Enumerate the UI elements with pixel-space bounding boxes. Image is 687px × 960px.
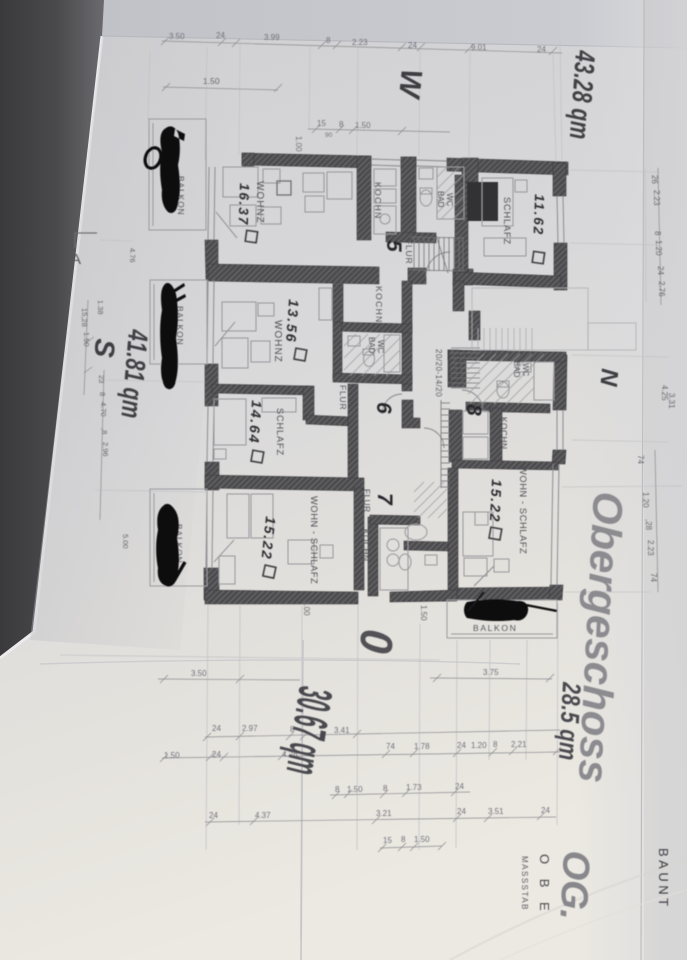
- svg-text:WOHNZ: WOHNZ: [272, 320, 283, 363]
- svg-text:KOCHN: KOCHN: [499, 417, 509, 449]
- svg-text:15.22: 15.22: [487, 479, 505, 524]
- svg-text:74: 74: [636, 455, 645, 464]
- svg-text:SCHLAFZ: SCHLAFZ: [275, 408, 285, 456]
- svg-text:8: 8: [462, 404, 485, 416]
- svg-text:WC: WC: [445, 193, 454, 207]
- svg-text:WC: WC: [376, 340, 385, 354]
- svg-text:3.75: 3.75: [483, 668, 499, 677]
- svg-text:20/20-14/20: 20/20-14/20: [434, 349, 443, 397]
- svg-text:23: 23: [97, 375, 106, 383]
- svg-text:WOHN - SCHLAFZ: WOHN - SCHLAFZ: [518, 466, 528, 554]
- svg-text:A: A: [71, 251, 81, 268]
- svg-text:BAD: BAD: [512, 361, 521, 378]
- svg-text:24: 24: [457, 807, 466, 816]
- svg-text:8: 8: [339, 120, 344, 129]
- svg-text:74: 74: [649, 573, 658, 582]
- svg-text:3.51: 3.51: [488, 807, 504, 816]
- svg-text:O B E: O B E: [537, 854, 552, 916]
- svg-text:43.28 qm: 43.28 qm: [563, 49, 600, 141]
- svg-text:24: 24: [656, 266, 665, 275]
- svg-text:14.64: 14.64: [246, 400, 265, 445]
- svg-text:MASSSTAB: MASSSTAB: [520, 856, 529, 911]
- svg-text:2.21: 2.21: [511, 740, 527, 749]
- svg-text:4.76: 4.76: [128, 248, 137, 263]
- svg-text:2.97: 2.97: [242, 724, 258, 733]
- svg-text:3.50: 3.50: [169, 32, 185, 41]
- svg-text:2.76: 2.76: [657, 281, 666, 297]
- svg-text:5: 5: [382, 240, 405, 252]
- svg-text:BAD: BAD: [436, 191, 445, 208]
- svg-text:WOHNZ: WOHNZ: [254, 181, 265, 224]
- svg-text:BALKON: BALKON: [473, 623, 517, 633]
- svg-text:OG.: OG.: [551, 850, 597, 922]
- svg-text:S: S: [88, 337, 121, 359]
- svg-text:13.56: 13.56: [283, 299, 302, 344]
- svg-text:24: 24: [541, 806, 550, 815]
- svg-text:1.38: 1.38: [96, 300, 105, 315]
- svg-text:1.50: 1.50: [203, 76, 220, 86]
- svg-text:1.50: 1.50: [414, 835, 430, 844]
- svg-text:8: 8: [493, 740, 498, 749]
- svg-text:1.00: 1.00: [294, 136, 303, 152]
- svg-text:15: 15: [383, 836, 392, 845]
- svg-text:3.21: 3.21: [376, 809, 392, 818]
- svg-text:8: 8: [98, 392, 107, 396]
- svg-text:1.50: 1.50: [419, 605, 428, 621]
- svg-text:15: 15: [317, 119, 326, 128]
- svg-text:24: 24: [216, 31, 225, 40]
- svg-text:3.99: 3.99: [264, 33, 280, 42]
- svg-text:1.50: 1.50: [355, 121, 371, 130]
- svg-text:74: 74: [386, 742, 395, 751]
- svg-text:24: 24: [408, 41, 417, 50]
- svg-text:5.00: 5.00: [121, 534, 130, 549]
- svg-text:8: 8: [326, 36, 331, 45]
- svg-text:1.00: 1.00: [302, 600, 311, 616]
- svg-text:24: 24: [455, 782, 464, 791]
- svg-text:6: 6: [372, 402, 395, 414]
- svg-text:24: 24: [212, 750, 221, 759]
- svg-text:3.50: 3.50: [191, 669, 207, 678]
- svg-text:8: 8: [653, 231, 662, 236]
- svg-text:KOCHN: KOCHN: [374, 286, 384, 324]
- svg-text:16.37: 16.37: [236, 183, 252, 226]
- svg-text:8: 8: [383, 784, 388, 793]
- svg-text:2.96: 2.96: [101, 442, 110, 457]
- svg-text:1.78: 1.78: [414, 742, 430, 751]
- svg-text:BAD: BAD: [367, 337, 376, 354]
- svg-text:2.23: 2.23: [646, 540, 655, 556]
- svg-text:BAUNT: BAUNT: [656, 848, 671, 910]
- svg-text:2.23: 2.23: [652, 190, 661, 206]
- svg-text:90: 90: [325, 132, 333, 139]
- svg-text:26: 26: [650, 175, 659, 184]
- svg-text:24: 24: [537, 45, 546, 54]
- svg-text:24: 24: [212, 724, 221, 733]
- svg-text:KOCHN: KOCHN: [373, 182, 383, 220]
- svg-text:SCHLAFZ: SCHLAFZ: [502, 197, 512, 245]
- svg-text:1.20: 1.20: [654, 240, 663, 256]
- svg-text:2.23: 2.23: [352, 38, 368, 47]
- svg-text:8: 8: [401, 835, 406, 844]
- svg-text:WC: WC: [521, 363, 530, 377]
- svg-text:WOHN - SCHLAFZ: WOHN - SCHLAFZ: [309, 496, 319, 584]
- svg-text:,28: ,28: [644, 519, 653, 531]
- svg-text:KOCHN: KOCHN: [361, 529, 371, 561]
- svg-text:FLUR: FLUR: [338, 385, 348, 410]
- svg-text:11.62: 11.62: [531, 194, 547, 236]
- svg-text:9.01: 9.01: [471, 43, 487, 52]
- svg-text:15,28: 15,28: [80, 308, 89, 327]
- svg-text:4.70: 4.70: [99, 402, 108, 417]
- svg-text:8: 8: [335, 785, 340, 794]
- svg-text:N: N: [594, 367, 622, 387]
- svg-text:,8: ,8: [100, 428, 109, 434]
- svg-text:FLUR: FLUR: [362, 489, 372, 513]
- svg-text:1.20: 1.20: [641, 492, 650, 508]
- svg-text:7: 7: [373, 493, 396, 506]
- svg-text:3.31: 3.31: [667, 393, 676, 409]
- svg-text:4.37: 4.37: [255, 811, 271, 820]
- svg-text:1.20: 1.20: [471, 741, 487, 750]
- svg-text:24: 24: [457, 741, 466, 750]
